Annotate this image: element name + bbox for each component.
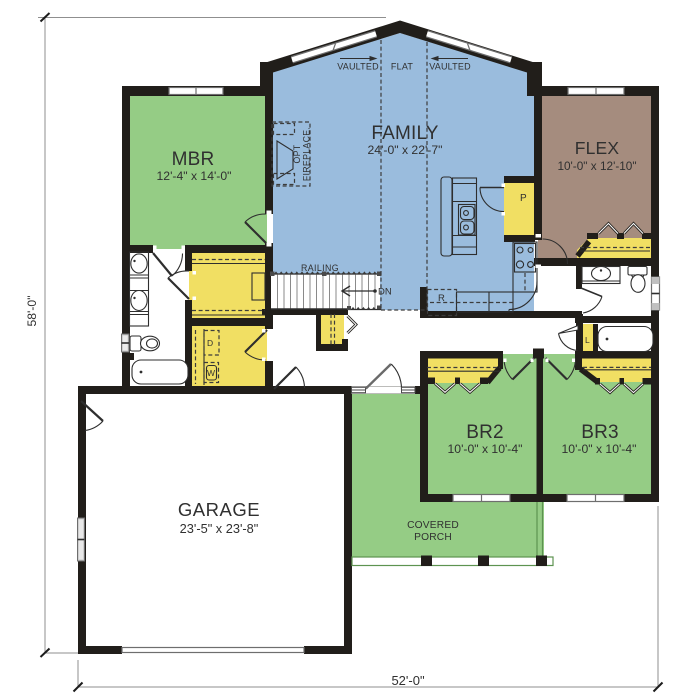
svg-text:P: P xyxy=(520,193,527,204)
svg-text:FAMILY: FAMILY xyxy=(371,123,438,144)
svg-text:DN: DN xyxy=(378,287,392,298)
svg-text:BR3: BR3 xyxy=(581,422,619,443)
svg-text:VAULTED: VAULTED xyxy=(429,62,471,72)
svg-text:24'-0" x 22'-7": 24'-0" x 22'-7" xyxy=(368,143,443,157)
svg-text:BR2: BR2 xyxy=(466,422,504,443)
svg-text:12'-4" x 14'-0": 12'-4" x 14'-0" xyxy=(157,169,232,183)
svg-text:MBR: MBR xyxy=(172,149,215,170)
svg-text:RAILING: RAILING xyxy=(301,263,339,273)
svg-text:FLAT: FLAT xyxy=(391,62,413,72)
svg-text:10'-0" x 10'-4": 10'-0" x 10'-4" xyxy=(448,442,523,456)
svg-text:23'-5" x 23'-8": 23'-5" x 23'-8" xyxy=(180,521,259,536)
svg-text:10'-0" x 10'-4": 10'-0" x 10'-4" xyxy=(562,442,637,456)
svg-text:FIREPLACE.: FIREPLACE. xyxy=(302,127,312,181)
svg-text:10'-0" x 12'-10": 10'-0" x 12'-10" xyxy=(557,159,636,173)
svg-text:GARAGE: GARAGE xyxy=(178,499,260,520)
svg-text:58'-0": 58'-0" xyxy=(25,295,39,326)
svg-text:W: W xyxy=(207,368,215,378)
svg-text:D: D xyxy=(207,338,213,348)
svg-text:VAULTED: VAULTED xyxy=(337,62,379,72)
svg-text:L: L xyxy=(585,335,590,345)
svg-text:R: R xyxy=(438,293,445,304)
svg-text:FLEX: FLEX xyxy=(575,138,620,158)
svg-text:COVERED: COVERED xyxy=(407,520,459,531)
svg-text:52'-0": 52'-0" xyxy=(391,673,425,688)
svg-text:OPT: OPT xyxy=(292,144,302,163)
svg-text:PORCH: PORCH xyxy=(414,532,452,543)
